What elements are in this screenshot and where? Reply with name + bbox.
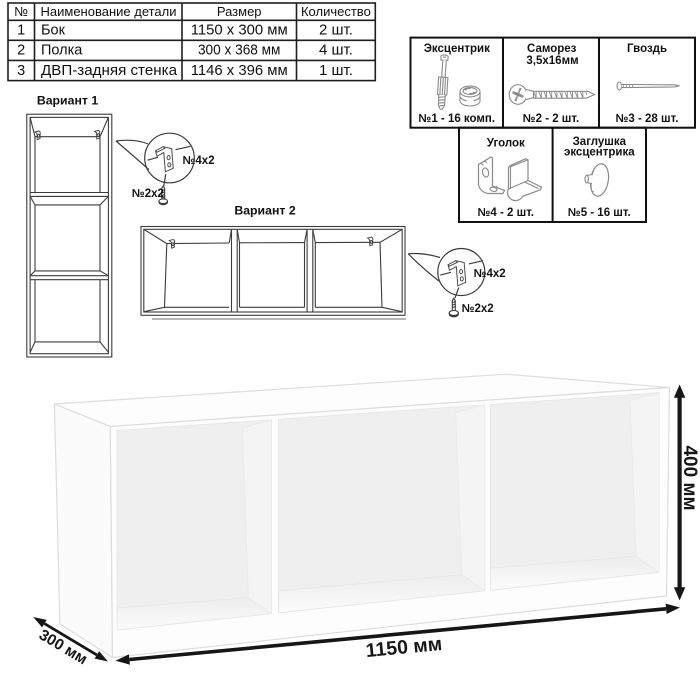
svg-text:2 шт.: 2 шт.	[319, 22, 353, 39]
svg-text:Саморез: Саморез	[527, 43, 577, 55]
svg-text:3: 3	[17, 63, 25, 79]
svg-text:1: 1	[17, 23, 25, 39]
svg-text:1146 x 396 мм: 1146 x 396 мм	[191, 62, 288, 79]
svg-text:№4 - 2 шт.: №4 - 2 шт.	[478, 207, 534, 219]
svg-text:ДВП-задняя стенка: ДВП-задняя стенка	[41, 63, 178, 79]
svg-text:300 x 368 мм: 300 x 368 мм	[198, 42, 281, 59]
svg-text:№3 - 28 шт.: №3 - 28 шт.	[616, 113, 679, 125]
svg-text:№5 - 16 шт.: №5 - 16 шт.	[568, 207, 631, 219]
svg-text:Количество: Количество	[301, 4, 371, 19]
svg-text:1150 x 300 мм: 1150 x 300 мм	[191, 22, 288, 39]
svg-text:Гвоздь: Гвоздь	[627, 43, 667, 55]
svg-text:Бок: Бок	[41, 23, 66, 39]
svg-text:Вариант 1: Вариант 1	[37, 94, 98, 108]
svg-text:№1 - 16 комп.: №1 - 16 комп.	[419, 113, 496, 125]
svg-text:Уголок: Уголок	[487, 137, 525, 149]
svg-text:Вариант 2: Вариант 2	[234, 204, 295, 218]
svg-text:№2х2: №2х2	[462, 303, 494, 315]
svg-text:Эксцентрик: Эксцентрик	[424, 43, 490, 55]
svg-text:эксцентрика: эксцентрика	[564, 147, 635, 159]
svg-text:400 мм: 400 мм	[679, 445, 700, 510]
svg-text:Наименование детали: Наименование детали	[41, 4, 177, 19]
svg-text:№2х2: №2х2	[132, 188, 164, 200]
svg-text:№4х2: №4х2	[474, 268, 506, 280]
svg-text:№2 - 2 шт.: №2 - 2 шт.	[523, 113, 579, 125]
svg-text:2: 2	[17, 43, 25, 59]
svg-text:№: №	[14, 4, 28, 19]
svg-text:4 шт.: 4 шт.	[319, 42, 353, 59]
svg-text:1 шт.: 1 шт.	[319, 62, 353, 79]
svg-text:3,5х16мм: 3,5х16мм	[526, 55, 578, 67]
svg-text:Полка: Полка	[41, 43, 83, 59]
svg-text:№4х2: №4х2	[183, 155, 215, 167]
svg-text:Размер: Размер	[217, 4, 262, 19]
